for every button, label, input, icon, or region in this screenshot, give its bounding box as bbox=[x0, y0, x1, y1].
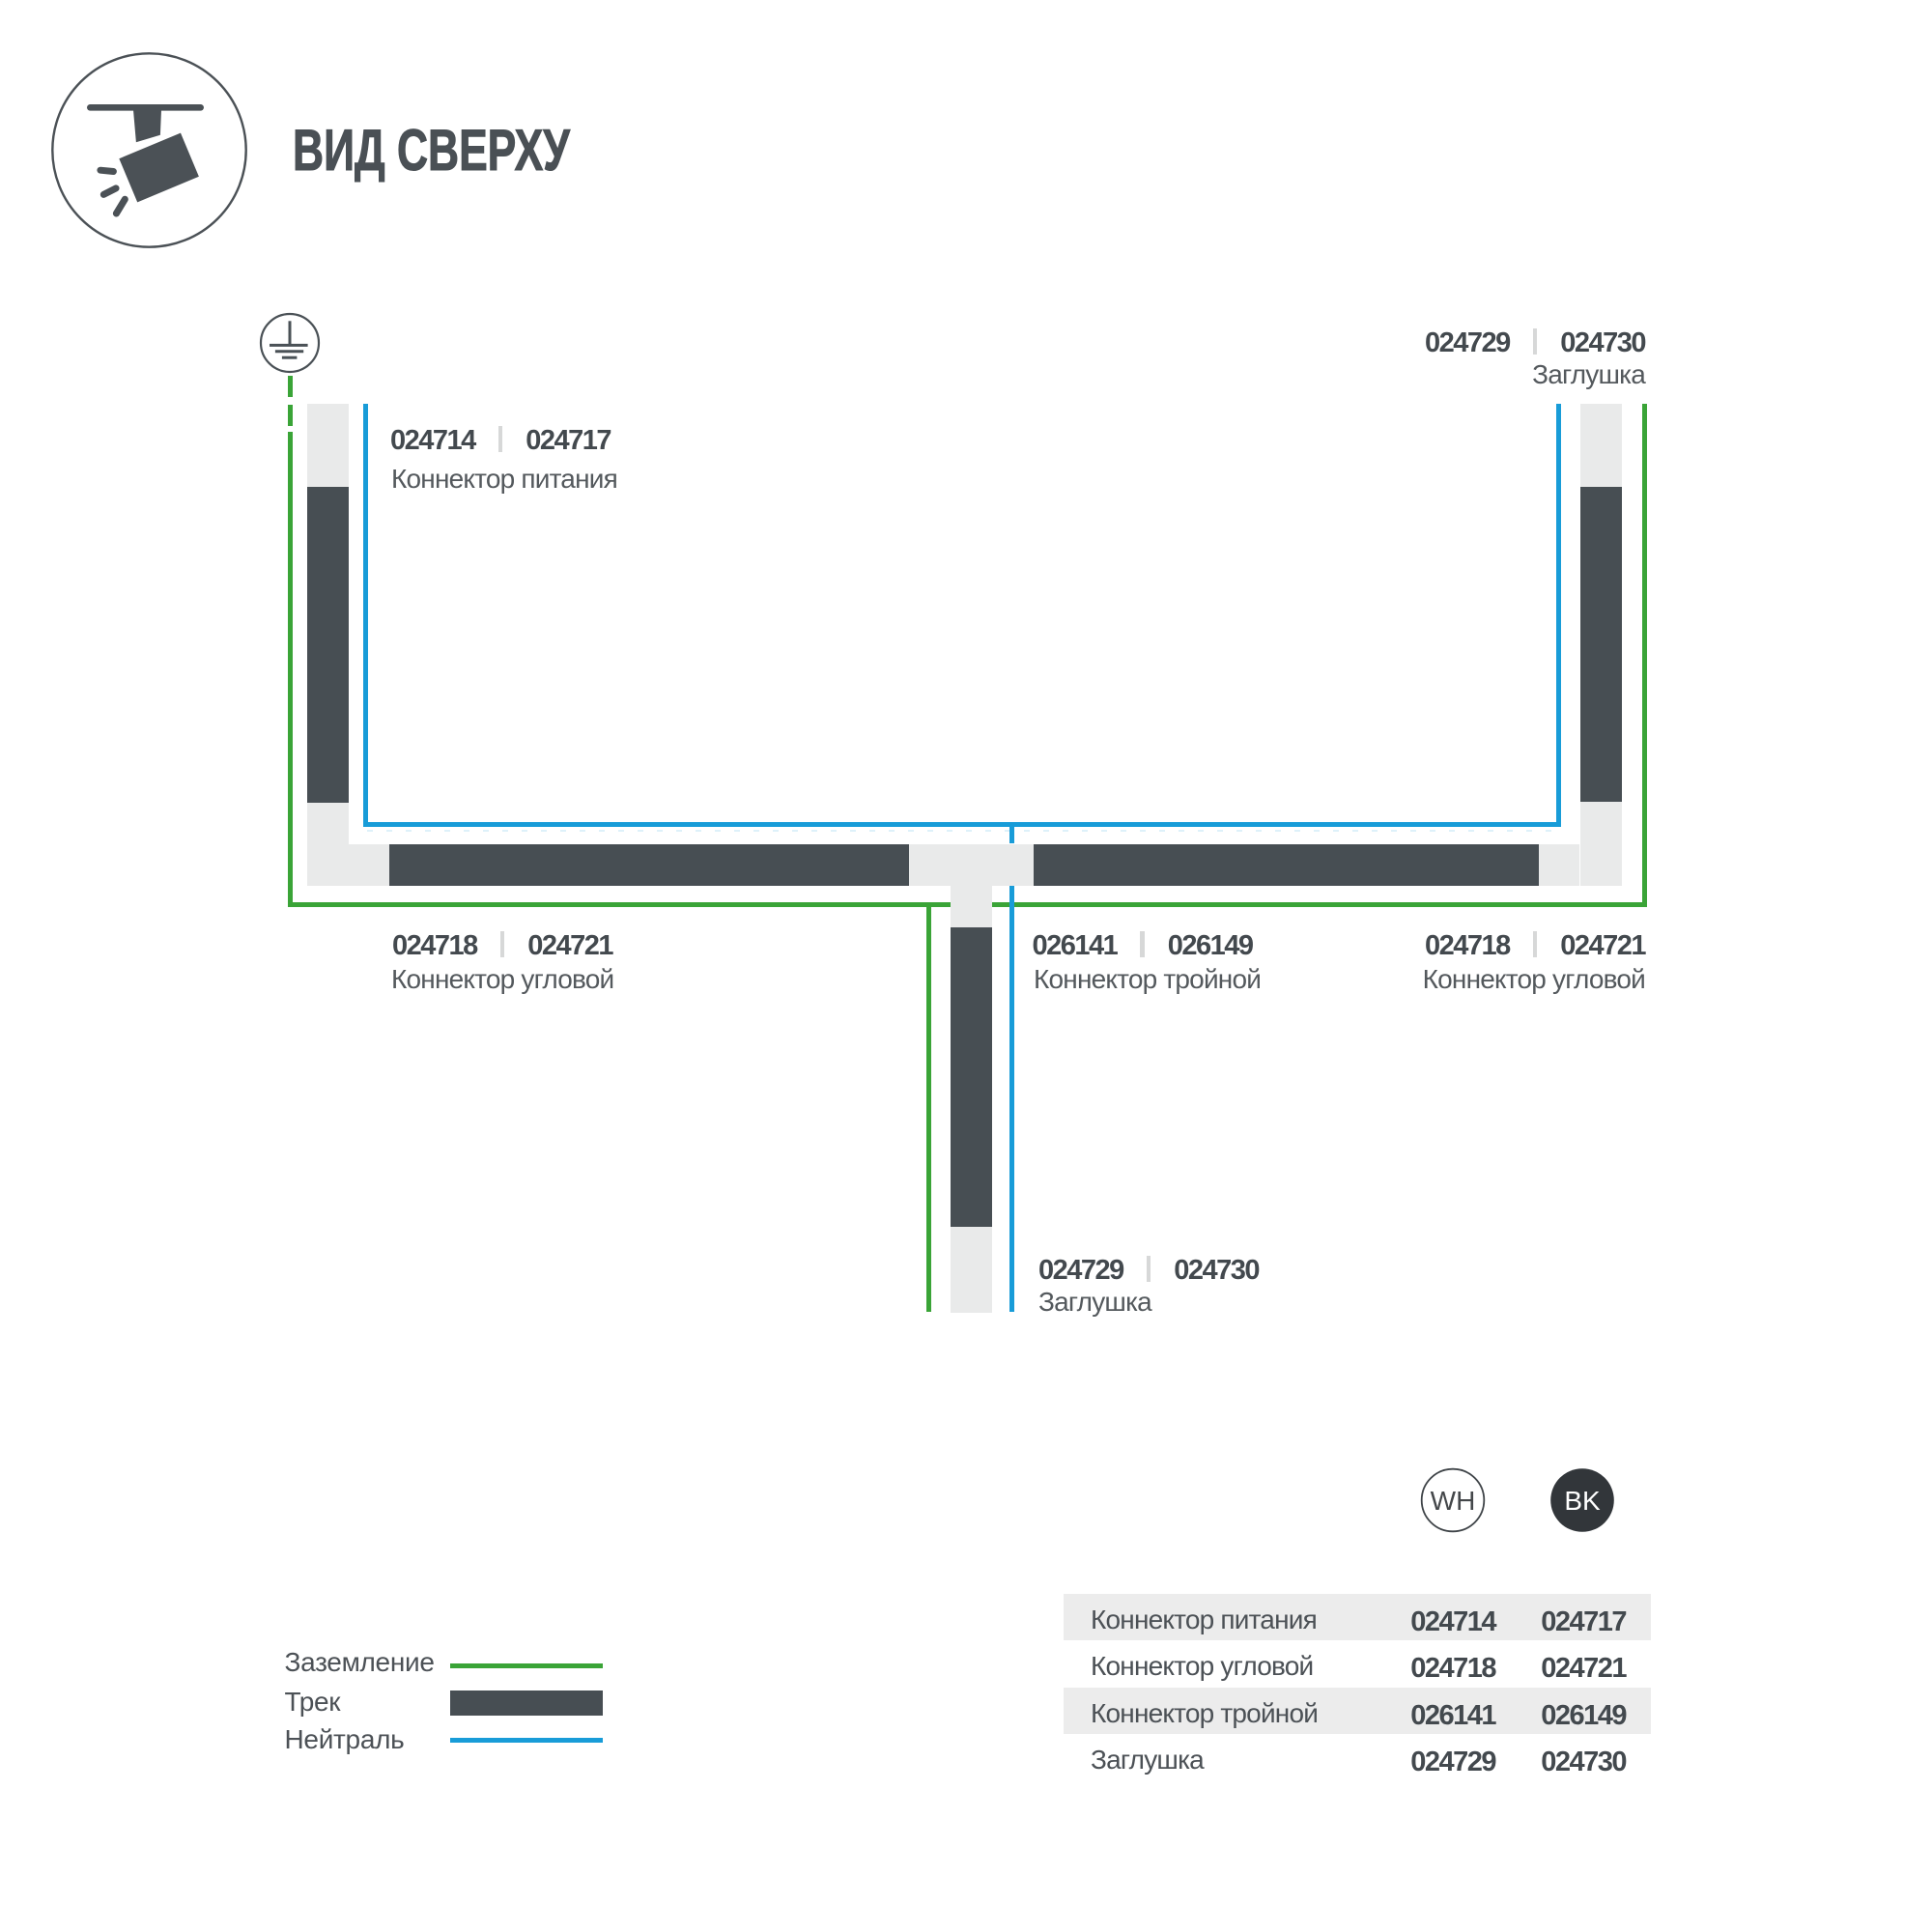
svg-text:WH: WH bbox=[1431, 1486, 1476, 1516]
svg-text:BK: BK bbox=[1564, 1486, 1601, 1516]
